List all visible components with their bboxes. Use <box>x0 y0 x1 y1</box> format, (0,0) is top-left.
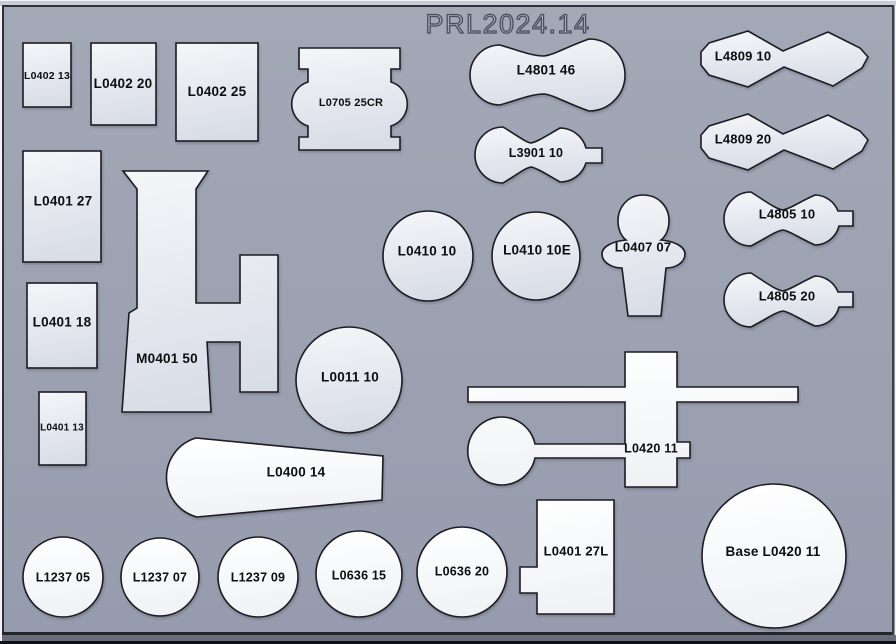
part-l4809-20-label: L4809 20 <box>715 132 772 147</box>
board-bottom-edge-line <box>2 632 894 635</box>
part-l1237-07: L1237 07 <box>121 538 199 616</box>
part-l0401-27: L0401 27 <box>23 151 101 262</box>
part-l0410-10e: L0410 10E <box>492 212 580 300</box>
part-l0420-11-label: L0420 11 <box>624 442 678 456</box>
part-l0402-25-label: L0402 25 <box>188 84 247 99</box>
board-drawing: PRL2024.14 L0402 13 L0402 20 L0402 25 L0… <box>0 0 896 644</box>
part-l0636-20: L0636 20 <box>417 527 507 617</box>
part-l0402-13: L0402 13 <box>23 43 71 107</box>
part-l0410-10e-label: L0410 10E <box>503 243 571 258</box>
part-l0410-10: L0410 10 <box>383 211 473 301</box>
part-m0401-50-label: M0401 50 <box>136 351 198 366</box>
part-l0705-25cr-label: L0705 25CR <box>319 97 383 109</box>
part-l4801-46-label: L4801 46 <box>517 63 576 78</box>
part-l0401-18: L0401 18 <box>27 283 97 368</box>
part-l1237-09-label: L1237 09 <box>231 571 285 585</box>
part-l0401-18-label: L0401 18 <box>33 315 92 330</box>
part-l0410-10-label: L0410 10 <box>398 244 457 259</box>
part-l4809-10-label: L4809 10 <box>715 49 772 64</box>
parts-board-sheet: PRL2024.14 L0402 13 L0402 20 L0402 25 L0… <box>0 0 896 644</box>
part-l0636-15-label: L0636 15 <box>332 569 386 583</box>
part-l0011-10-label: L0011 10 <box>321 370 379 385</box>
sheet-title: PRL2024.14 <box>425 9 590 39</box>
part-l0400-14-label: L0400 14 <box>267 465 326 480</box>
part-l4805-20-label: L4805 20 <box>759 289 816 304</box>
part-l0402-13-label: L0402 13 <box>24 70 70 82</box>
board-right-edge <box>892 6 895 635</box>
part-l1237-05-label: L1237 05 <box>36 571 90 585</box>
part-l1237-09: L1237 09 <box>218 537 298 617</box>
part-l0401-13: L0401 13 <box>39 392 86 465</box>
part-l3901-10-label: L3901 10 <box>509 146 563 160</box>
part-l0401-13-label: L0401 13 <box>40 423 84 434</box>
part-l0402-20-label: L0402 20 <box>94 76 153 91</box>
part-l0402-25: L0402 25 <box>176 43 258 141</box>
part-l0401-27l-label: L0401 27L <box>544 544 609 559</box>
part-base-l0420-11-label: Base L0420 11 <box>726 544 821 559</box>
part-l0636-20-label: L0636 20 <box>435 565 489 579</box>
part-l0401-27-label: L0401 27 <box>34 194 93 209</box>
part-l0636-15: L0636 15 <box>316 531 402 617</box>
part-l4805-10-label: L4805 10 <box>759 207 816 222</box>
part-l1237-05: L1237 05 <box>23 537 103 617</box>
board-bottom-shadow <box>2 635 896 641</box>
part-l0402-20: L0402 20 <box>91 43 156 125</box>
part-base-l0420-11: Base L0420 11 <box>702 484 846 628</box>
part-l0011-10: L0011 10 <box>296 327 402 433</box>
part-l1237-07-label: L1237 07 <box>133 571 187 585</box>
part-l0407-07-label: L0407 07 <box>615 240 672 255</box>
part-l0705-25cr: L0705 25CR <box>292 48 408 150</box>
